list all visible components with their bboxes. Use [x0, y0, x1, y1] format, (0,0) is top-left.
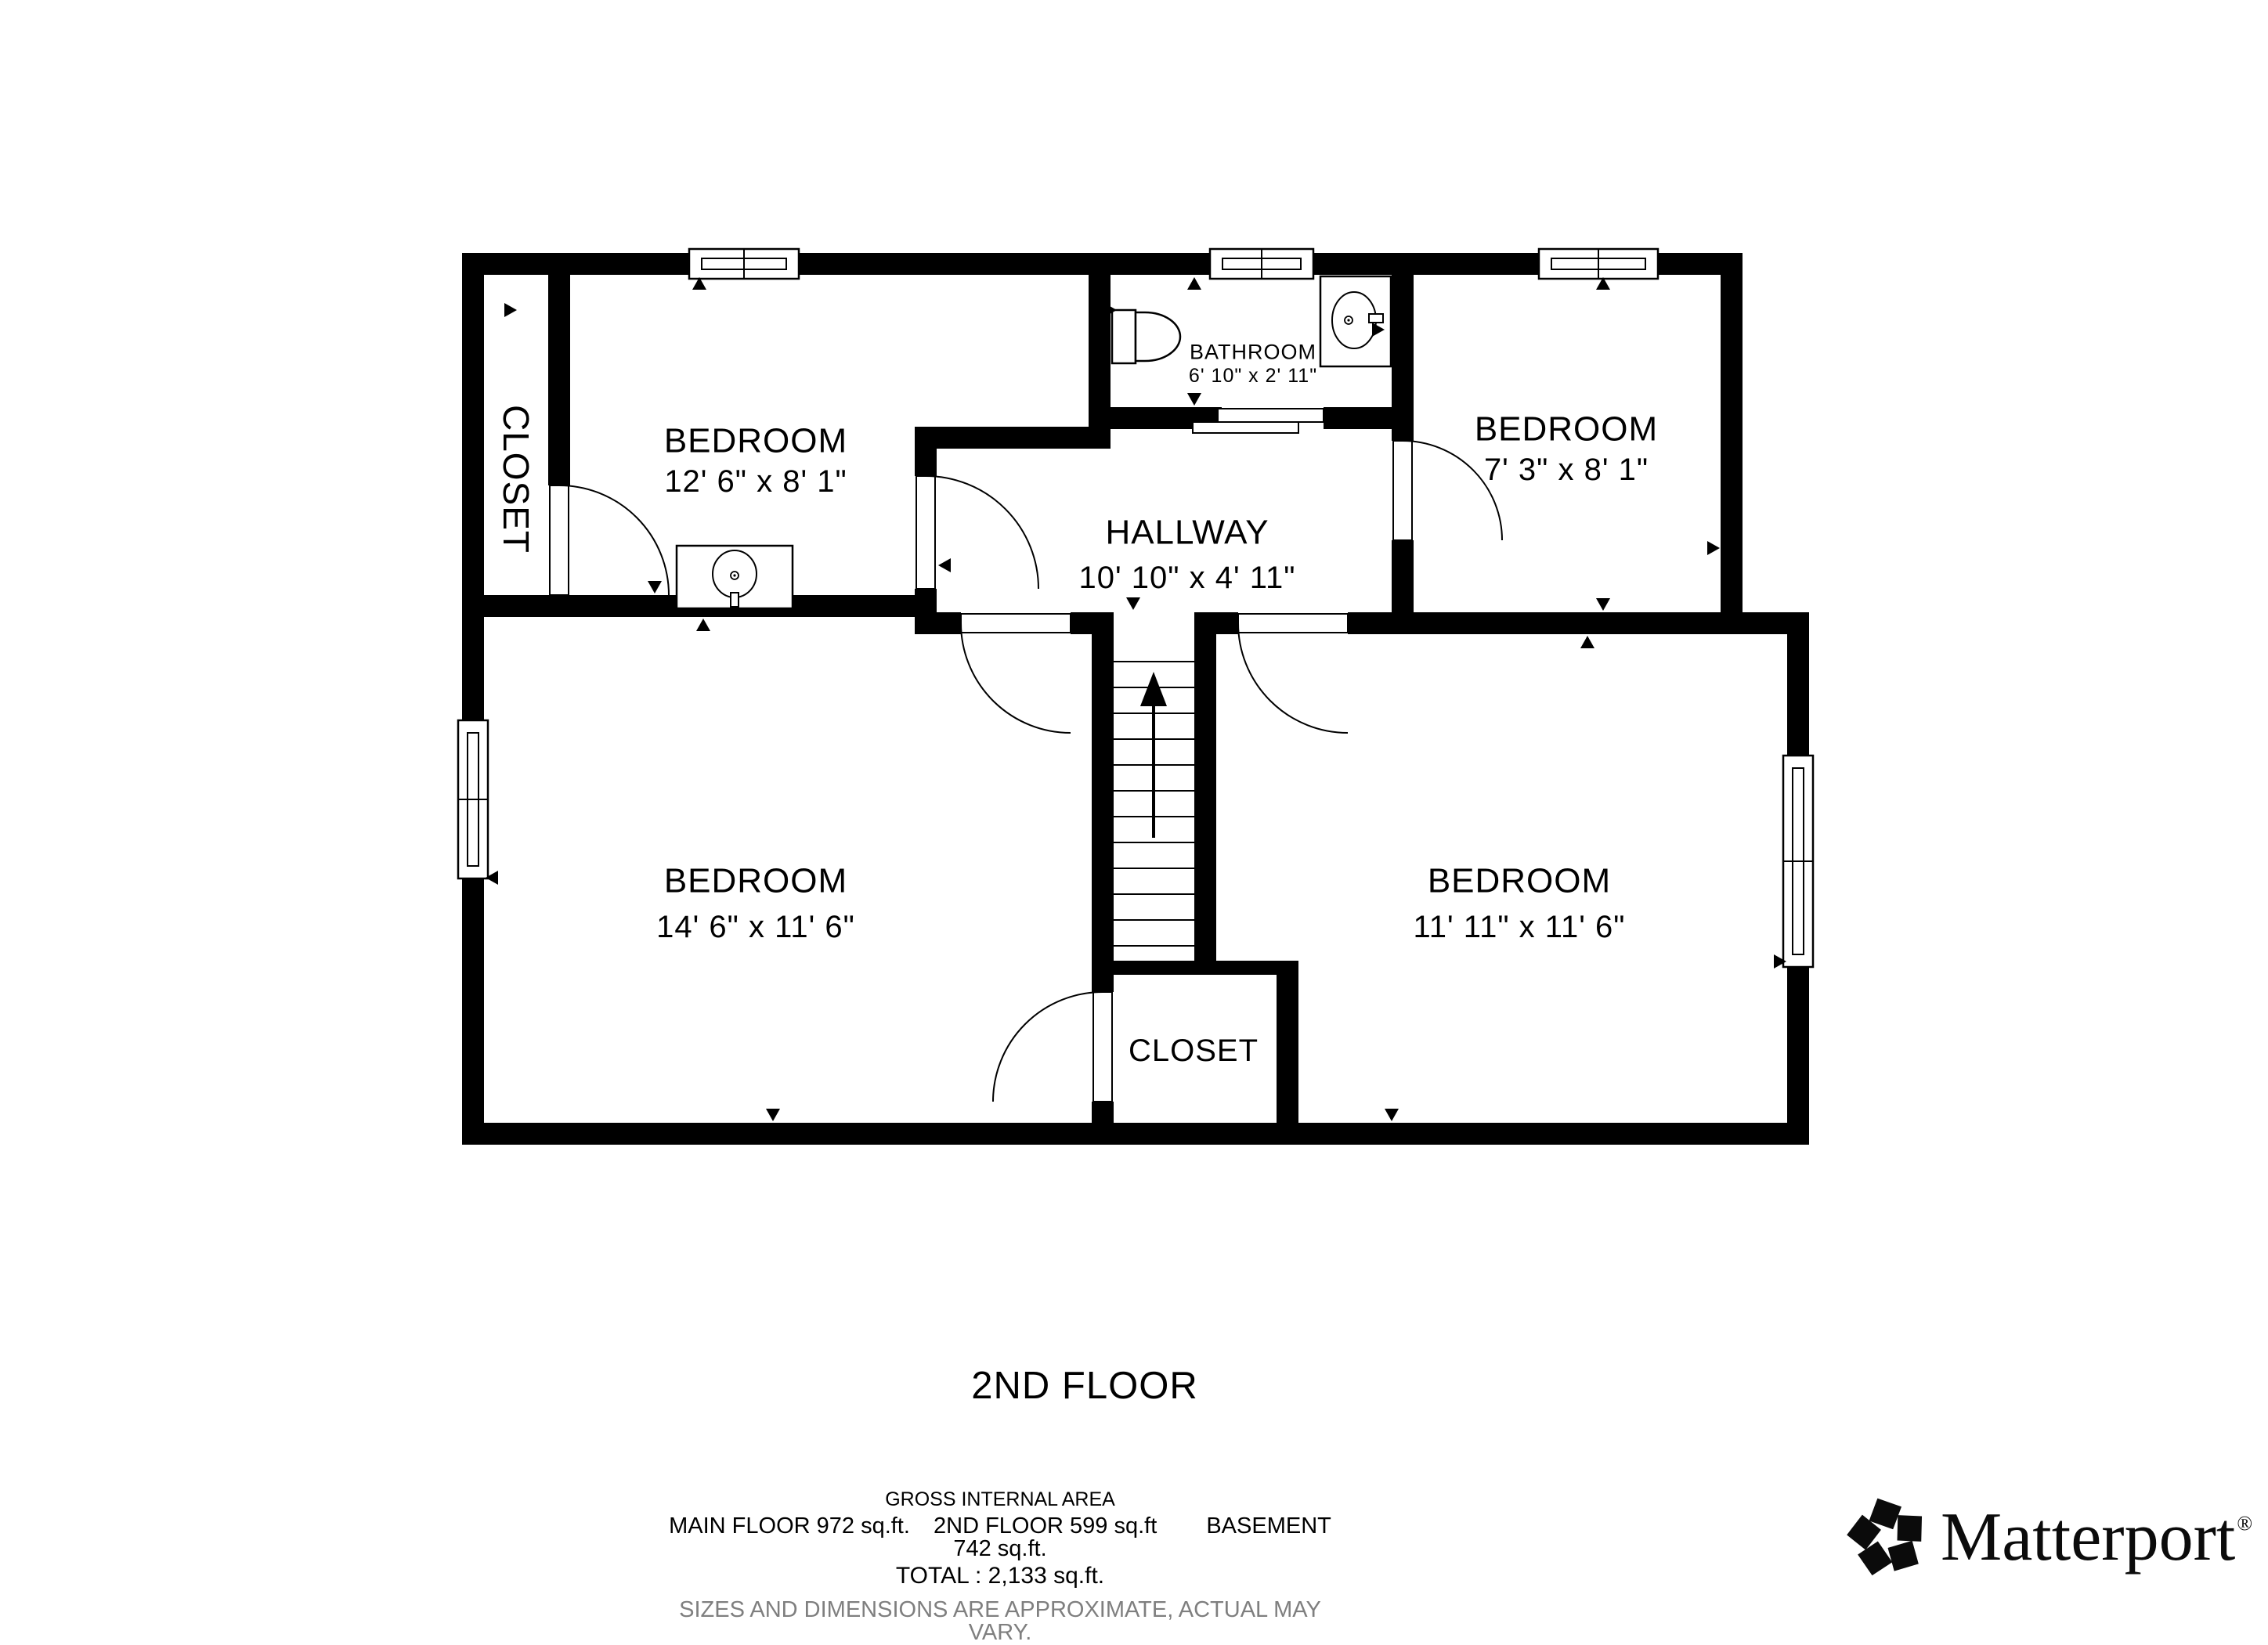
toilet-tank-icon — [1112, 310, 1136, 363]
main-floor-area: MAIN FLOOR 972 sq.ft. — [669, 1513, 910, 1539]
area-summary: GROSS INTERNAL AREA MAIN FLOOR 972 sq.ft… — [648, 1490, 1352, 1644]
dimension-marker-up — [1580, 636, 1594, 648]
wall-segment — [915, 427, 937, 476]
matterport-logo-icon — [1845, 1494, 1930, 1582]
door-bedroom-top-right-leaf — [1393, 441, 1412, 540]
wall-segment — [548, 275, 570, 485]
dimension-marker-down — [1126, 597, 1140, 610]
floor-plan: CLOSETBEDROOM12' 6" x 8' 1"BATHROOM6' 10… — [0, 0, 2268, 1604]
wall-segment — [462, 253, 484, 1145]
door-closet-bottom-swing-arc — [993, 992, 1103, 1102]
bedroom-sink-icon-drain-center — [733, 574, 735, 576]
room-label-bedroom-top-right: BEDROOM — [1475, 409, 1658, 448]
room-label-closet-top-left: CLOSET — [496, 405, 536, 554]
registered-mark: ® — [2237, 1512, 2252, 1535]
second-floor-area: 2ND FLOOR 599 sq.ft — [934, 1513, 1157, 1539]
dimension-marker-down — [766, 1109, 780, 1121]
bathroom-sink-icon-faucet — [1369, 314, 1383, 323]
door-bedroom-bottom-left-swing-arc — [961, 623, 1071, 733]
matterport-wordmark: Matterport® — [1941, 1503, 2252, 1572]
gross-internal-area-heading: GROSS INTERNAL AREA — [648, 1490, 1352, 1510]
room-dimensions-bedroom-bottom-right: 11' 11" x 11' 6" — [1414, 910, 1626, 944]
dimension-marker-down — [1596, 598, 1610, 611]
wall-segment — [1392, 253, 1414, 441]
room-dimensions-bedroom-top-right: 7' 3" x 8' 1" — [1484, 453, 1649, 487]
wall-segment — [462, 1123, 1809, 1145]
wall-segment — [1071, 612, 1114, 634]
room-dimensions-hallway: 10' 10" x 4' 11" — [1079, 561, 1296, 595]
dimension-marker-up — [1187, 277, 1201, 290]
total-area: TOTAL : 2,133 sq.ft. — [648, 1564, 1352, 1588]
room-dimensions-bedroom-top-left: 12' 6" x 8' 1" — [664, 464, 847, 499]
door-bedroom-bottom-left-leaf — [961, 614, 1071, 633]
dimension-marker-down — [1385, 1109, 1399, 1121]
toilet-bowl-icon — [1136, 312, 1180, 361]
room-dimensions-bathroom: 6' 10" x 2' 11" — [1189, 365, 1317, 387]
door-bathroom-pocket-a-leaf — [1218, 409, 1324, 422]
wall-segment — [1092, 634, 1114, 992]
wall-segment — [1721, 253, 1743, 634]
wall-segment — [1348, 612, 1809, 634]
room-label-bedroom-top-left: BEDROOM — [664, 421, 847, 460]
wall-segment — [937, 612, 961, 634]
room-label-bedroom-bottom-left: BEDROOM — [664, 861, 847, 900]
door-closet-top-left-leaf — [550, 485, 569, 595]
floor-areas-line: MAIN FLOOR 972 sq.ft. 2ND FLOOR 599 sq.f… — [648, 1515, 1352, 1560]
room-dimensions-bedroom-bottom-left: 14' 6" x 11' 6" — [656, 910, 855, 944]
wall-segment — [1277, 975, 1298, 1145]
bedroom-sink-icon-faucet — [731, 593, 739, 607]
floor-title: 2ND FLOOR — [850, 1364, 1320, 1408]
door-bedroom-bottom-right-swing-arc — [1238, 623, 1348, 733]
stairs-up-arrow-head — [1140, 672, 1167, 706]
wall-segment — [915, 612, 937, 634]
dimension-marker-right — [504, 303, 517, 317]
room-label-hallway: HALLWAY — [1105, 513, 1269, 551]
door-bedroom-top-left-swing-arc — [926, 476, 1038, 589]
room-label-closet-bottom-middle: CLOSET — [1129, 1034, 1259, 1068]
wall-segment — [915, 427, 1094, 449]
room-label-bedroom-bottom-right: BEDROOM — [1428, 861, 1611, 900]
dimension-marker-left — [938, 558, 951, 572]
door-closet-top-left-swing-arc — [559, 485, 669, 595]
dimension-marker-down — [648, 581, 662, 593]
door-bedroom-bottom-right-leaf — [1238, 614, 1348, 633]
door-bathroom-pocket-b-leaf — [1193, 422, 1298, 433]
wall-segment — [1194, 612, 1238, 634]
wall-segment — [1092, 1102, 1114, 1145]
door-bedroom-top-left-leaf — [916, 476, 935, 589]
room-label-bathroom: BATHROOM — [1190, 340, 1316, 363]
matterport-logo: Matterport® — [1845, 1494, 2252, 1582]
door-closet-bottom-leaf — [1093, 992, 1112, 1102]
dimension-marker-right — [1707, 541, 1720, 555]
dimension-marker-down — [1187, 393, 1201, 406]
dimension-marker-up — [696, 619, 710, 631]
bathroom-sink-icon-drain-center — [1347, 319, 1349, 321]
wall-segment — [1092, 961, 1298, 975]
wall-segment — [1392, 540, 1414, 634]
disclaimer-text: SIZES AND DIMENSIONS ARE APPROXIMATE, AC… — [648, 1599, 1352, 1644]
wall-segment — [1194, 634, 1216, 975]
